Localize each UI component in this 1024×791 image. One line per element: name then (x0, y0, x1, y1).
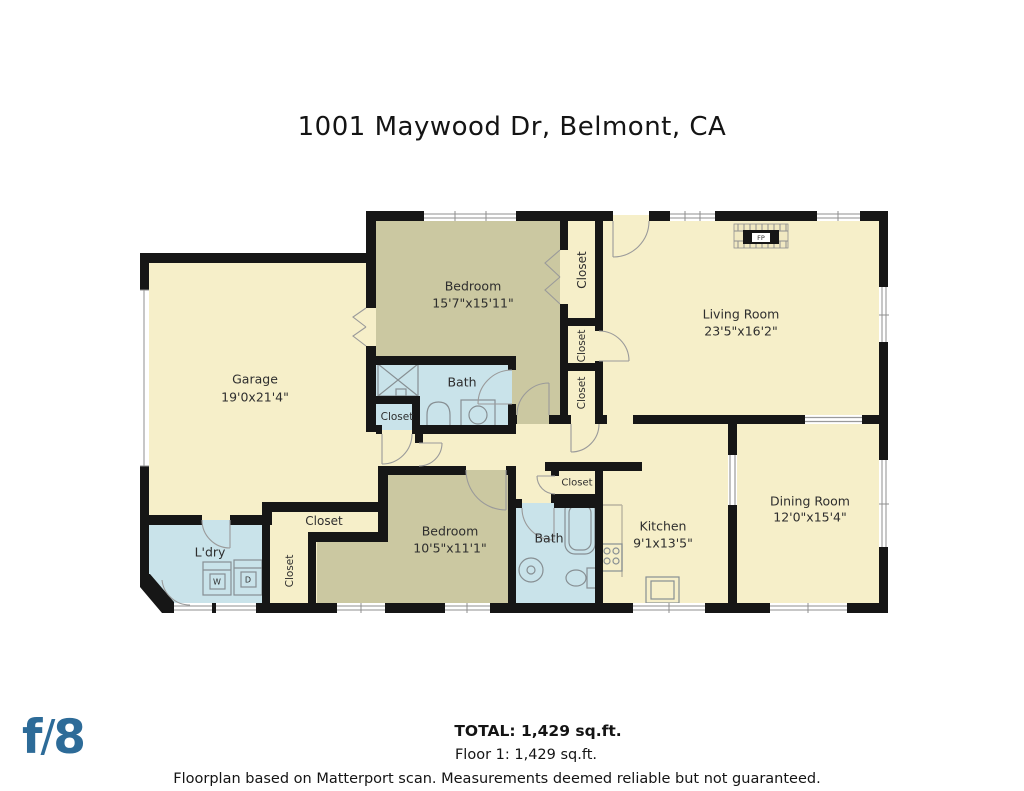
closet2-label: Closet (576, 330, 588, 363)
closet-hall-label: Closet (305, 514, 343, 528)
floorplan-drawing: Garage 19'0x21'4" Bedroom 15'7"x15'11" L… (0, 0, 1024, 791)
floor-area-label: Floor 1: 1,429 sq.ft. (14, 747, 1024, 763)
garage-label: Garage (232, 372, 278, 387)
dryer-label: D (245, 576, 251, 585)
closet3-label: Closet (576, 377, 588, 410)
logo-eight: 8 (53, 710, 86, 765)
washer-label: W (213, 578, 221, 587)
total-area-label: TOTAL: 1,429 sq.ft. (26, 722, 1024, 740)
bath2-label: Bath (534, 531, 563, 546)
f8-logo: f/8 (22, 714, 86, 761)
living-room-dims-label: 23'5"x16'2" (704, 324, 778, 339)
kitchen-dims-label: 9'1x13'5" (633, 536, 693, 551)
logo-slash: / (40, 711, 55, 762)
bedroom1-label: Bedroom (445, 279, 502, 294)
bedroom2-label: Bedroom (422, 524, 479, 539)
bedroom2-dims-label: 10'5"x11'1" (413, 541, 487, 556)
laundry-label: L'dry (195, 545, 226, 560)
fireplace-label: FP (757, 234, 765, 242)
closet-bath-label: Closet (381, 411, 414, 423)
kitchen-label: Kitchen (640, 519, 687, 534)
bedroom1-dims-label: 15'7"x15'11" (432, 296, 513, 311)
dining-room-label: Dining Room (770, 494, 850, 509)
closet1-label: Closet (575, 251, 589, 289)
bath2-area (512, 503, 599, 607)
closet-laundry-label: Closet (284, 555, 296, 588)
dining-room-dims-label: 12'0"x15'4" (773, 510, 847, 525)
garage-dims-label: 19'0x21'4" (221, 390, 289, 405)
disclaimer-text: Floorplan based on Matterport scan. Meas… (0, 771, 1009, 787)
floorplan-page: 1001 Maywood Dr, Belmont, CA (0, 0, 1024, 791)
closet-kitchen-label: Closet (561, 478, 592, 489)
bath1-label: Bath (447, 375, 476, 390)
living-room-label: Living Room (703, 307, 780, 322)
